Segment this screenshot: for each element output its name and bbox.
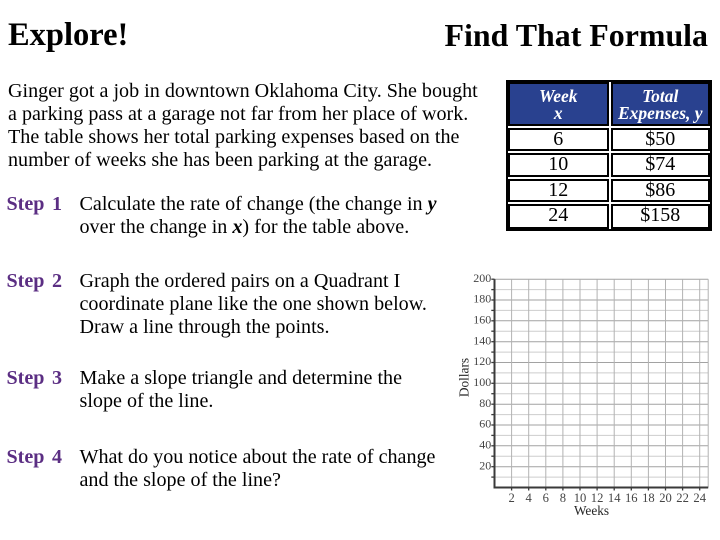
svg-text:2: 2 bbox=[508, 491, 514, 505]
svg-text:4: 4 bbox=[526, 491, 533, 505]
svg-text:200: 200 bbox=[473, 271, 491, 285]
svg-text:120: 120 bbox=[473, 354, 491, 368]
svg-text:180: 180 bbox=[473, 292, 491, 306]
svg-text:16: 16 bbox=[625, 491, 638, 505]
svg-text:60: 60 bbox=[479, 417, 491, 431]
svg-text:20: 20 bbox=[479, 458, 491, 472]
svg-text:14: 14 bbox=[608, 491, 621, 505]
svg-text:Dollars: Dollars bbox=[456, 358, 471, 397]
svg-text:20: 20 bbox=[659, 491, 672, 505]
svg-text:40: 40 bbox=[479, 437, 491, 451]
svg-text:100: 100 bbox=[473, 375, 491, 389]
svg-text:140: 140 bbox=[473, 333, 491, 347]
svg-text:24: 24 bbox=[693, 491, 706, 505]
svg-text:Weeks: Weeks bbox=[574, 503, 609, 518]
svg-text:8: 8 bbox=[560, 491, 566, 505]
svg-text:18: 18 bbox=[642, 491, 655, 505]
svg-text:6: 6 bbox=[543, 491, 549, 505]
svg-text:80: 80 bbox=[479, 396, 491, 410]
svg-text:160: 160 bbox=[473, 312, 491, 326]
svg-text:22: 22 bbox=[676, 491, 689, 505]
